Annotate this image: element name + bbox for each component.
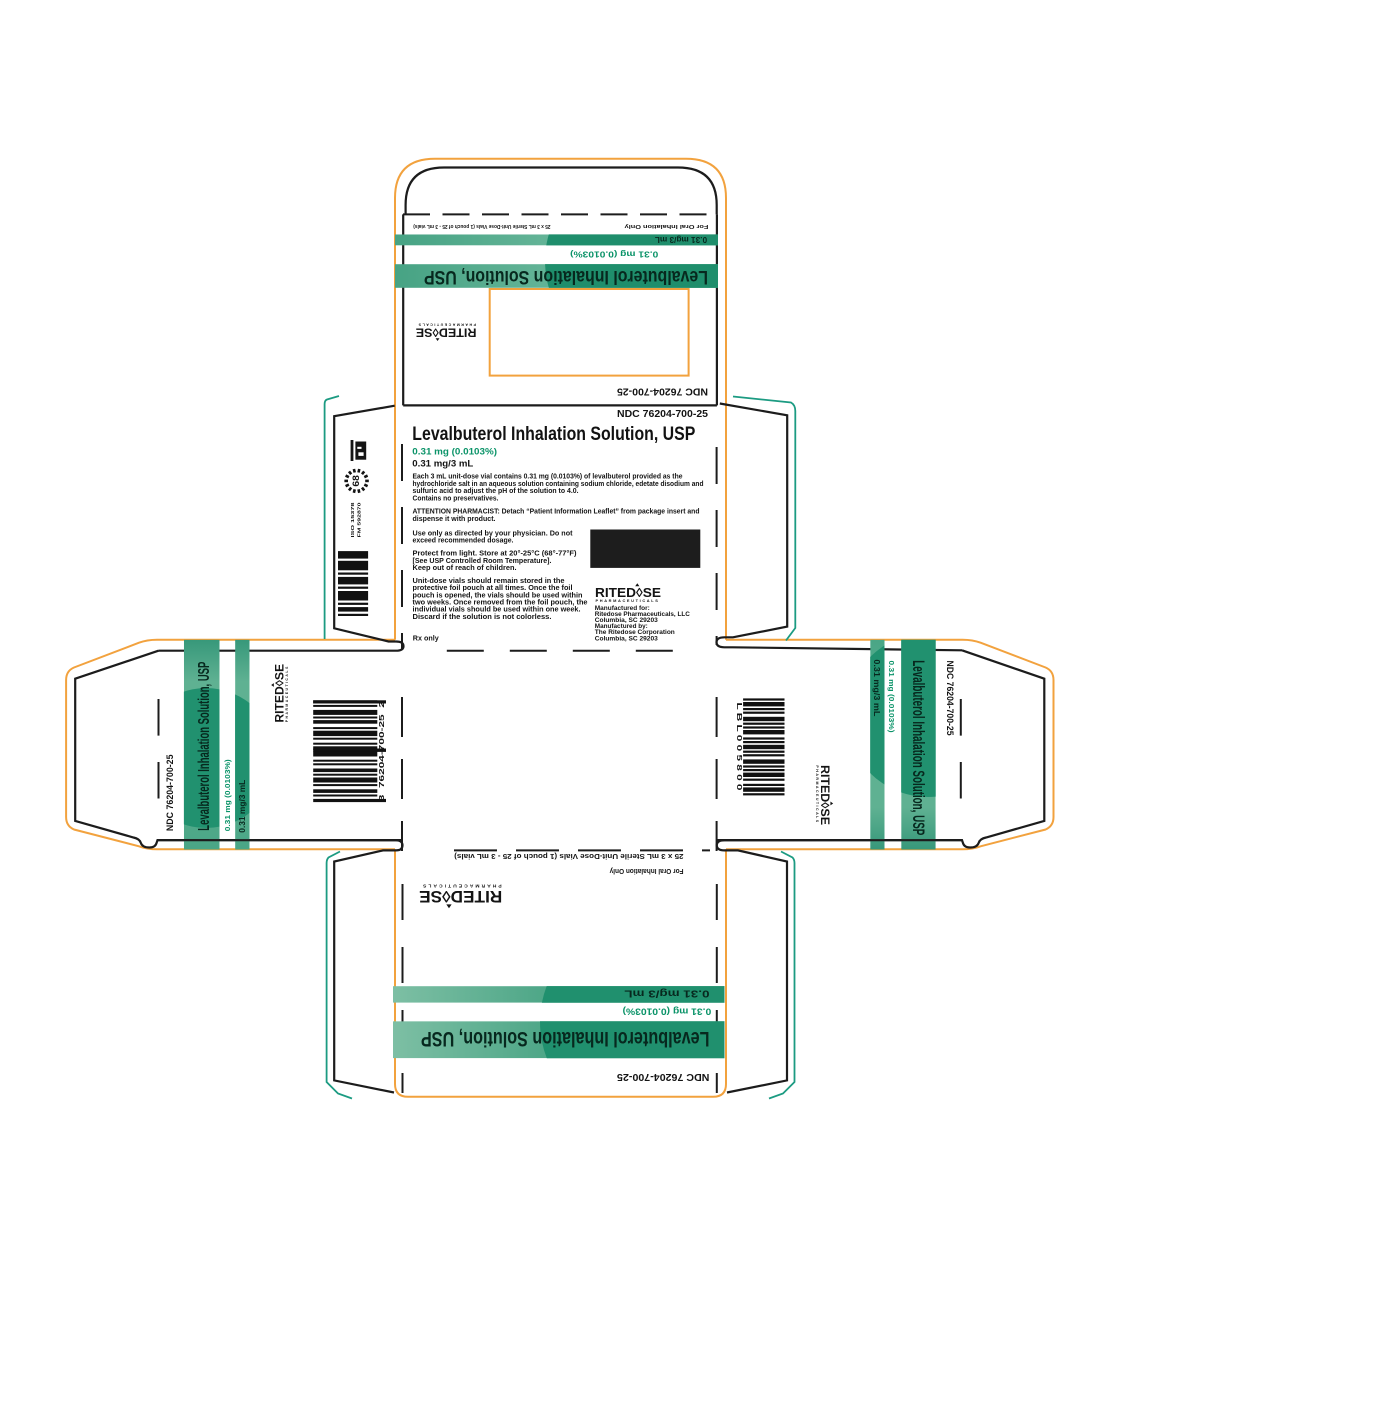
svg-text:exceed recommended dosage.: exceed recommended dosage. — [413, 536, 514, 545]
svg-text:0.31 mg (0.0103%): 0.31 mg (0.0103%) — [412, 446, 497, 456]
svg-text:Columbia, SC 29203: Columbia, SC 29203 — [595, 635, 659, 642]
svg-text:0.31 mg/3 mL: 0.31 mg/3 mL — [655, 235, 707, 245]
svg-text:NDC 76204-700-25: NDC 76204-700-25 — [165, 755, 175, 832]
svg-text:L B L 0 0 5 8 0 0: L B L 0 0 5 8 0 0 — [735, 703, 742, 791]
svg-text:FM 592870: FM 592870 — [356, 502, 361, 538]
svg-text:25 x 3 mL Sterile Unit-Dose Vi: 25 x 3 mL Sterile Unit-Dose Vials (1 pou… — [413, 223, 551, 229]
svg-text:dispense it with product.: dispense it with product. — [413, 514, 496, 523]
svg-text:0.31 mg/3 mL: 0.31 mg/3 mL — [237, 780, 247, 833]
svg-text:Rx only: Rx only — [413, 634, 440, 643]
svg-text:0.31 mg/3 mL: 0.31 mg/3 mL — [624, 988, 710, 1000]
svg-text:0.31 mg (0.0103%): 0.31 mg (0.0103%) — [223, 759, 232, 832]
svg-text:68: 68 — [351, 475, 362, 487]
svg-text:Levalbuterol Inhalation Soluti: Levalbuterol Inhalation Solution, USP — [412, 424, 695, 445]
svg-text:ISO 15378: ISO 15378 — [350, 502, 355, 538]
svg-text:For Oral Inhalation Only: For Oral Inhalation Only — [625, 223, 709, 229]
svg-text:0.31 mg/3 mL: 0.31 mg/3 mL — [872, 659, 882, 716]
svg-text:For Oral Inhalation Only: For Oral Inhalation Only — [610, 867, 684, 876]
svg-text:Levalbuterol Inhalation Soluti: Levalbuterol Inhalation Solution, USP — [424, 266, 708, 287]
svg-text:Levalbuterol Inhalation Soluti: Levalbuterol Inhalation Solution, USP — [196, 662, 213, 831]
svg-text:0.31 mg (0.0103%): 0.31 mg (0.0103%) — [623, 1006, 712, 1017]
svg-text:25 x 3 mL Sterile Unit-Dose Vi: 25 x 3 mL Sterile Unit-Dose Vials (1 pou… — [454, 852, 684, 861]
svg-text:NDC 76204-700-25: NDC 76204-700-25 — [617, 1071, 710, 1082]
svg-text:0.31 mg (0.0103%): 0.31 mg (0.0103%) — [887, 661, 896, 734]
svg-text:0.31 mg (0.0103%): 0.31 mg (0.0103%) — [570, 249, 658, 259]
svg-text:Contains no preservatives.: Contains no preservatives. — [413, 493, 499, 502]
svg-text:NDC 76204-700-25: NDC 76204-700-25 — [617, 409, 708, 420]
svg-text:NDC 76204-700-25: NDC 76204-700-25 — [617, 386, 708, 397]
svg-text:Keep out of reach of children.: Keep out of reach of children. — [413, 563, 517, 572]
svg-text:0.31 mg/3 mL: 0.31 mg/3 mL — [412, 459, 474, 469]
svg-text:Levalbuterol Inhalation Soluti: Levalbuterol Inhalation Solution, USP — [909, 660, 928, 835]
svg-text:Levalbuterol Inhalation Soluti: Levalbuterol Inhalation Solution, USP — [421, 1027, 710, 1051]
svg-text:Discard if the solution is not: Discard if the solution is not colorless… — [413, 612, 552, 621]
svg-text:3 76204-700-25 2: 3 76204-700-25 2 — [379, 701, 386, 801]
svg-text:NDC 76204-700-25: NDC 76204-700-25 — [945, 661, 955, 736]
